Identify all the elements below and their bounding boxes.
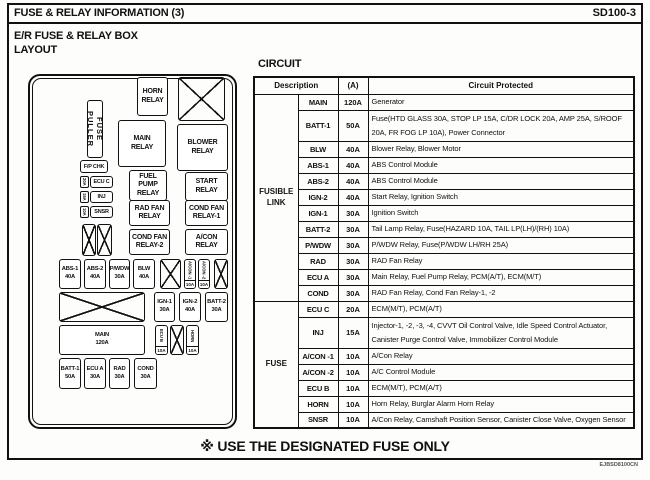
- circuit-protected-cell: Ignition Switch: [368, 205, 634, 221]
- table-row: P/WDW30AP/WDW Relay, Fuse(P/WDW LH/RH 25…: [254, 237, 634, 253]
- box-label: RAD 30A: [114, 366, 126, 382]
- box-blw: BLW 40A: [133, 259, 155, 289]
- table-row: IGN-240AStart Relay, Ignition Switch: [254, 189, 634, 205]
- table-row: ECU B10AECM(M/T), PCM(A/T): [254, 380, 634, 396]
- fuse-name-cell: IGN-1: [298, 205, 338, 221]
- box-label: A/CON -2: [202, 261, 207, 279]
- box-acon-relay: A/CON RELAY: [185, 229, 228, 255]
- circuit-protected-cell: RAD Fan Relay: [368, 253, 634, 269]
- box-label: FUSE PULLER: [87, 101, 103, 157]
- fuse-name-cell: ECU C: [298, 301, 338, 317]
- circuit-protected-cell: Generator: [368, 94, 634, 110]
- circuit-protected-cell: A/Con Relay: [368, 348, 634, 364]
- box-label: A/CON -1: [188, 261, 193, 279]
- circuit-protected-cell: Fuse(HTD GLASS 30A, STOP LP 15A, C/DR LO…: [368, 110, 634, 141]
- amp-cell: 30A: [338, 205, 368, 221]
- table-row: SNSR10AA/Con Relay, Camshaft Position Se…: [254, 412, 634, 428]
- box-cond: COND 30A: [134, 358, 157, 389]
- box-label: START RELAY: [195, 178, 217, 195]
- box-label: ECU A 30A: [87, 366, 104, 382]
- fuse-name-cell: COND: [298, 285, 338, 301]
- circuit-protected-cell: ECM(M/T), PCM(A/T): [368, 301, 634, 317]
- box-snsr: SNSR: [90, 206, 113, 218]
- amp-cell: 30A: [338, 253, 368, 269]
- page-code: SD100-3: [593, 7, 636, 19]
- crossed-box: [214, 259, 228, 289]
- box-ecu-b: ECU B10A: [155, 325, 168, 355]
- fuse-relay-box-diagram: FUSE PULLERHORN RELAYMAIN RELAYBLOWER RE…: [28, 74, 237, 429]
- box-rad-fan-relay: RAD FAN RELAY: [129, 200, 170, 226]
- circuit-protected-cell: ABS Control Module: [368, 173, 634, 189]
- box-label: ECU B: [159, 329, 164, 342]
- box-fp-chk: F/P CHK: [80, 160, 108, 173]
- box-inj-amp: 15A: [80, 191, 89, 203]
- manual-page: FUSE & RELAY INFORMATION (3) SD100-3 E/R…: [0, 0, 650, 480]
- amp-cell: 40A: [338, 189, 368, 205]
- circuit-protected-cell: Start Relay, Ignition Switch: [368, 189, 634, 205]
- box-label: IGN-1 30A: [157, 299, 171, 315]
- box-label: BLW 40A: [138, 266, 150, 282]
- amp-cell: 15A: [338, 317, 368, 348]
- box-horn-relay: HORN RELAY: [137, 77, 168, 116]
- amp-cell: 10A: [338, 396, 368, 412]
- box-batt-2: BATT-2 30A: [205, 292, 228, 322]
- box-label: ABS-1 40A: [62, 266, 78, 282]
- amp-cell: 40A: [338, 157, 368, 173]
- box-label: P/WDW 30A: [110, 266, 130, 282]
- box-label: 15A: [82, 193, 87, 201]
- box-amp-label: 10A: [156, 346, 167, 354]
- table-row: FUSIBLE LINKMAIN120AGenerator: [254, 94, 634, 110]
- group-label: FUSE: [254, 301, 298, 428]
- fuse-name-cell: SNSR: [298, 412, 338, 428]
- table-row: HORN10AHorn Relay, Burglar Alarm Horn Re…: [254, 396, 634, 412]
- page-title: FUSE & RELAY INFORMATION (3): [14, 7, 184, 19]
- circuit-table: Description (A) Circuit Protected FUSIBL…: [253, 76, 635, 429]
- box-start-relay: START RELAY: [185, 172, 228, 201]
- box-inj: INJ: [90, 191, 113, 203]
- header-divider: [7, 22, 643, 24]
- fuse-name-cell: ECU B: [298, 380, 338, 396]
- table-row: FUSEECU C20AECM(M/T), PCM(A/T): [254, 301, 634, 317]
- crossed-box: [59, 292, 145, 322]
- crossed-box: [170, 325, 184, 355]
- table-row: BATT-150AFuse(HTD GLASS 30A, STOP LP 15A…: [254, 110, 634, 141]
- amp-cell: 10A: [338, 348, 368, 364]
- fuse-name-cell: BATT-2: [298, 221, 338, 237]
- box-label: COND FAN RELAY-2: [132, 234, 167, 251]
- box-label: A/CON RELAY: [195, 234, 217, 251]
- box-label: HORN RELAY: [141, 88, 163, 105]
- table-row: RAD30ARAD Fan Relay: [254, 253, 634, 269]
- box-snsr-amp: 10A: [80, 206, 89, 218]
- box-rad: RAD 30A: [109, 358, 130, 389]
- table-row: IGN-130AIgnition Switch: [254, 205, 634, 221]
- amp-cell: 30A: [338, 237, 368, 253]
- fuse-name-cell: HORN: [298, 396, 338, 412]
- amp-cell: 10A: [338, 380, 368, 396]
- circuit-protected-cell: Main Relay, Fuel Pump Relay, PCM(A/T), E…: [368, 269, 634, 285]
- box-amp-label: 10A: [199, 280, 209, 288]
- group-label: FUSIBLE LINK: [254, 94, 298, 301]
- circuit-protected-cell: A/Con Relay, Camshaft Position Sensor, C…: [368, 412, 634, 428]
- amp-cell: 50A: [338, 110, 368, 141]
- header-description: Description: [254, 77, 338, 94]
- box-label: FUEL PUMP RELAY: [137, 173, 159, 198]
- circuit-protected-cell: Blower Relay, Blower Motor: [368, 141, 634, 157]
- table-row: ABS-140AABS Control Module: [254, 157, 634, 173]
- header-circuit-protected: Circuit Protected: [368, 77, 634, 94]
- box-abs-2: ABS-2 40A: [84, 259, 106, 289]
- box-label: 10A: [82, 208, 87, 216]
- box-batt-1: BATT-1 50A: [59, 358, 81, 389]
- fuse-name-cell: BLW: [298, 141, 338, 157]
- table-row: INJ15AInjector-1, -2, -3, -4, CVVT Oil C…: [254, 317, 634, 348]
- box-label: ABS-2 40A: [87, 266, 103, 282]
- amp-cell: 30A: [338, 269, 368, 285]
- fuse-name-cell: INJ: [298, 317, 338, 348]
- table-row: A/CON -110AA/Con Relay: [254, 348, 634, 364]
- box-amp-label: 10A: [185, 280, 195, 288]
- table-row: A/CON -210AA/C Control Module: [254, 364, 634, 380]
- box-ecu-c: ECU C: [90, 176, 113, 188]
- fuse-name-cell: P/WDW: [298, 237, 338, 253]
- crossed-box: [97, 224, 112, 256]
- table-row: COND30ARAD Fan Relay, Cond Fan Relay-1, …: [254, 285, 634, 301]
- box-label: COND 30A: [137, 366, 153, 382]
- box-label: 20A: [82, 178, 87, 186]
- box-label: BATT-2 30A: [207, 299, 226, 315]
- fuse-name-cell: IGN-2: [298, 189, 338, 205]
- circuit-protected-cell: Horn Relay, Burglar Alarm Horn Relay: [368, 396, 634, 412]
- box-ign-2: IGN-2 40A: [179, 292, 201, 322]
- table-header-row: Description (A) Circuit Protected: [254, 77, 634, 94]
- box-fuel-pump-relay: FUEL PUMP RELAY: [129, 170, 167, 201]
- amp-cell: 120A: [338, 94, 368, 110]
- box-ecu-c-amp: 20A: [80, 176, 89, 188]
- circuit-protected-cell: Tail Lamp Relay, Fuse(HAZARD 10A, TAIL L…: [368, 221, 634, 237]
- box-label: RAD FAN RELAY: [135, 205, 165, 222]
- fuse-name-cell: BATT-1: [298, 110, 338, 141]
- box-horn: HORN10A: [186, 325, 199, 355]
- box-main-relay: MAIN RELAY: [118, 120, 166, 167]
- amp-cell: 10A: [338, 364, 368, 380]
- document-code: EJBSD8100CN: [599, 462, 638, 468]
- fuse-name-cell: A/CON -1: [298, 348, 338, 364]
- table-row: ECU A30AMain Relay, Fuel Pump Relay, PCM…: [254, 269, 634, 285]
- box-main-120: MAIN 120A: [59, 325, 145, 355]
- amp-cell: 20A: [338, 301, 368, 317]
- amp-cell: 30A: [338, 285, 368, 301]
- box-ign-1: IGN-1 30A: [154, 292, 175, 322]
- fuse-name-cell: A/CON -2: [298, 364, 338, 380]
- table-row: ABS-240AABS Control Module: [254, 173, 634, 189]
- box-label: MAIN 120A: [95, 332, 109, 348]
- fuse-name-cell: RAD: [298, 253, 338, 269]
- crossed-box: [178, 77, 225, 121]
- circuit-protected-cell: ECM(M/T), PCM(A/T): [368, 380, 634, 396]
- box-pwdw: P/WDW 30A: [109, 259, 130, 289]
- crossed-box: [160, 259, 181, 289]
- box-label: HORN: [190, 330, 195, 342]
- table-row: BLW40ABlower Relay, Blower Motor: [254, 141, 634, 157]
- circuit-protected-cell: ABS Control Module: [368, 157, 634, 173]
- box-label: F/P CHK: [84, 164, 105, 170]
- box-label: SNSR: [94, 209, 108, 215]
- header-amps: (A): [338, 77, 368, 94]
- circuit-protected-cell: A/C Control Module: [368, 364, 634, 380]
- fuse-name-cell: ABS-2: [298, 173, 338, 189]
- circuit-protected-cell: P/WDW Relay, Fuse(P/WDW LH/RH 25A): [368, 237, 634, 253]
- box-blower-relay: BLOWER RELAY: [177, 124, 228, 171]
- amp-cell: 40A: [338, 141, 368, 157]
- box-label: INJ: [98, 194, 106, 200]
- box-cond-fan-relay-2: COND FAN RELAY-2: [129, 229, 170, 255]
- fuse-name-cell: ECU A: [298, 269, 338, 285]
- table-row: BATT-230ATail Lamp Relay, Fuse(HAZARD 10…: [254, 221, 634, 237]
- box-acon-1: A/CON -110A: [184, 259, 196, 289]
- box-acon-2: A/CON -210A: [198, 259, 210, 289]
- box-abs-1: ABS-1 40A: [59, 259, 81, 289]
- designated-fuse-warning: ※ USE THE DESIGNATED FUSE ONLY: [7, 438, 643, 455]
- circuit-panel-heading: CIRCUIT: [258, 57, 301, 71]
- fuse-name-cell: MAIN: [298, 94, 338, 110]
- circuit-protected-cell: Injector-1, -2, -3, -4, CVVT Oil Control…: [368, 317, 634, 348]
- box-label: ECU C: [93, 179, 109, 185]
- box-label: MAIN RELAY: [131, 135, 153, 152]
- circuit-protected-cell: RAD Fan Relay, Cond Fan Relay-1, -2: [368, 285, 634, 301]
- box-label: BATT-1 50A: [61, 366, 80, 382]
- fuse-name-cell: ABS-1: [298, 157, 338, 173]
- amp-cell: 40A: [338, 173, 368, 189]
- box-cond-fan-relay-1: COND FAN RELAY-1: [185, 200, 228, 226]
- layout-panel-heading: E/R FUSE & RELAY BOX LAYOUT: [14, 29, 138, 57]
- box-label: COND FAN RELAY-1: [189, 205, 224, 222]
- box-ecu-a: ECU A 30A: [84, 358, 106, 389]
- box-fuse-puller: FUSE PULLER: [87, 100, 103, 158]
- amp-cell: 30A: [338, 221, 368, 237]
- box-amp-label: 10A: [187, 346, 198, 354]
- crossed-box: [82, 224, 96, 256]
- amp-cell: 10A: [338, 412, 368, 428]
- box-label: BLOWER RELAY: [188, 139, 218, 156]
- box-label: IGN-2 40A: [183, 299, 197, 315]
